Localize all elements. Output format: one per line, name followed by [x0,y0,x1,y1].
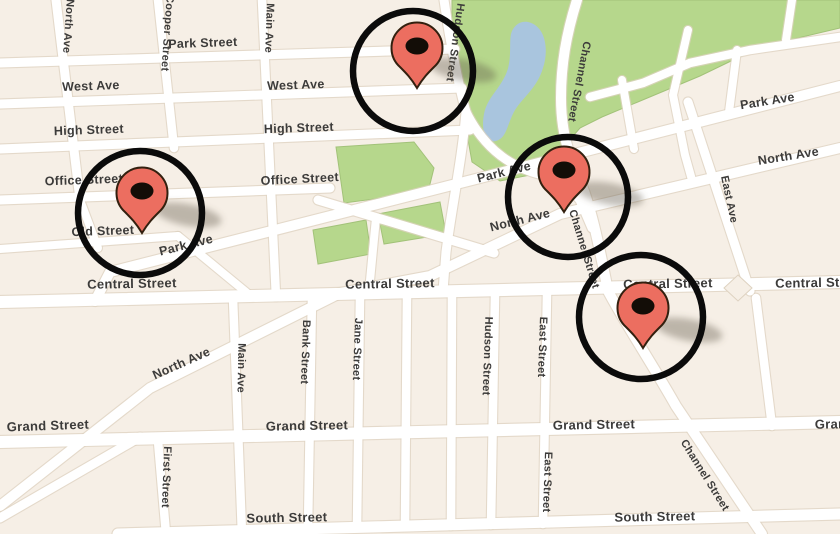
street-label: West Ave [62,78,120,94]
pin-hole [553,162,576,179]
street-label: Jane Street [350,318,364,381]
map-canvas: Park StreetWest AveWest AveHigh StreetHi… [0,0,840,534]
street-label: Bank Street [298,320,312,385]
street-label: South Street [614,508,696,524]
street-label: South Street [246,509,328,525]
street-road [451,294,452,526]
street-map: Park StreetWest AveWest AveHigh StreetHi… [0,0,840,534]
street-label: Grand Street [266,417,349,433]
street-road [405,295,407,526]
street-label: Main Ave [235,343,248,393]
pin-hole [131,183,154,200]
pin-hole [632,298,655,315]
street-label: Grand Street [6,417,89,435]
street-label: High Street [54,122,125,138]
street-label: High Street [264,120,335,136]
street-label: West Ave [267,77,325,93]
street-label: East Street [535,317,549,378]
street-label: Grand Street [815,415,840,431]
street-label: Main Ave [262,3,276,53]
street-label: Central Street [775,274,840,291]
street-label: East Street [540,452,554,513]
street-label: Park Street [168,35,238,51]
street-label: Grand Street [553,416,636,432]
pin-hole [406,38,429,55]
street-label: Central Street [345,275,435,292]
street-label: First Street [159,446,173,508]
